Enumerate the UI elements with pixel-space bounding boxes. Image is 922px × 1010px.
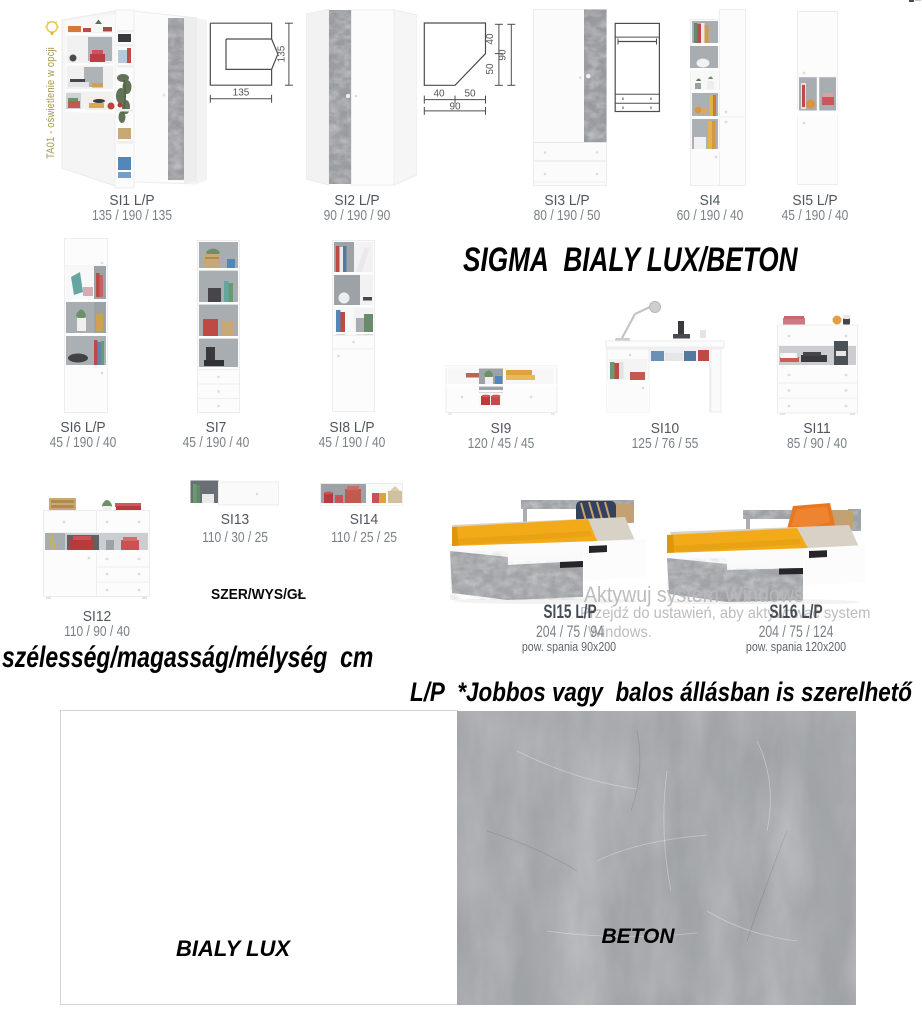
svg-text:135: 135 <box>277 45 288 62</box>
svg-text:40: 40 <box>485 33 496 45</box>
svg-text:135: 135 <box>233 88 250 99</box>
svg-text:40: 40 <box>433 89 445 100</box>
svg-text:50: 50 <box>464 89 476 100</box>
svg-text:50: 50 <box>485 63 496 75</box>
svg-text:90: 90 <box>449 102 461 113</box>
svg-text:90: 90 <box>498 49 509 61</box>
